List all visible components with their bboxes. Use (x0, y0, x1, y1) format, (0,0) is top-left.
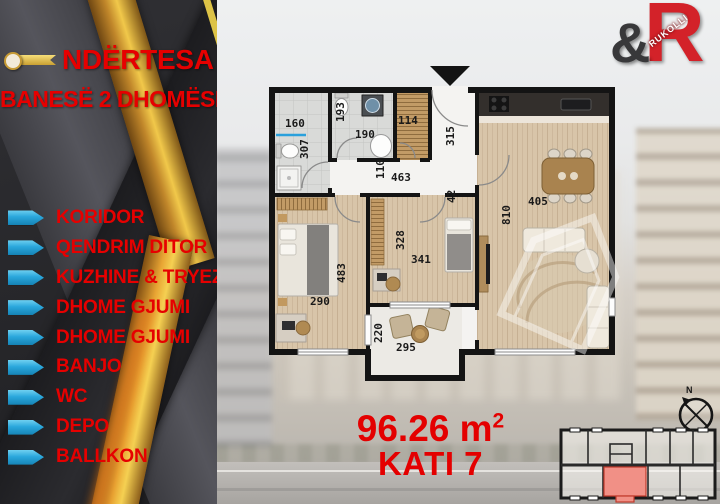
tv (486, 244, 490, 284)
left-info-panel: NDËRTESA 1 BANESË 2 DHOMËSHE KORIDOR QEN… (0, 0, 217, 504)
key-plan-window (676, 496, 686, 500)
room-label: DHOME GJUMI (56, 297, 190, 319)
room-label: KORIDOR (56, 207, 144, 229)
pillow (280, 244, 296, 255)
laptop (282, 321, 295, 330)
room-list-item: KUZHINE & TRYEZARI (8, 263, 217, 293)
window (365, 315, 371, 345)
room-label: WC (56, 386, 87, 408)
north-label: N (686, 385, 693, 395)
arrow-bullet-icon (8, 450, 44, 465)
wall (330, 158, 337, 162)
wardrobe-1 (277, 198, 327, 210)
pillow (280, 229, 296, 240)
arrow-bullet-icon (8, 270, 44, 285)
window (609, 298, 615, 316)
bed-blanket (307, 225, 329, 295)
floor-plan-svg: 160 307 193 190 114 315 110 463 483 290 … (265, 58, 625, 388)
wall (328, 90, 332, 162)
wall (475, 185, 479, 310)
bed-blanket (447, 234, 471, 270)
dim-label: 810 (500, 205, 513, 225)
pillow (447, 220, 471, 230)
room-list-item: QENDRIM DITOR (8, 233, 217, 263)
wall (475, 340, 479, 352)
area-exponent: 2 (493, 410, 505, 433)
room-list-item: KORIDOR (8, 203, 217, 233)
arrow-bullet-icon (8, 390, 44, 405)
entrance-arrow-icon (430, 66, 470, 86)
dim-label: 328 (394, 230, 407, 250)
wardrobe-2 (371, 199, 384, 265)
dim-label: 42 (445, 190, 458, 203)
dim-label: 190 (355, 128, 375, 141)
dim-label: 307 (298, 139, 311, 159)
arrow-bullet-icon (8, 210, 44, 225)
floor-label: KATI 7 (338, 447, 523, 482)
room-list-item: BANJO (8, 352, 217, 382)
dim-label: 114 (398, 114, 418, 127)
dim-label: 483 (335, 263, 348, 283)
dim-label: 463 (391, 171, 411, 184)
room-label: BANJO (56, 356, 122, 378)
dim-label: 220 (372, 323, 385, 343)
key-plan-window (698, 428, 708, 432)
dim-label: 193 (334, 102, 347, 122)
table-decor (558, 172, 566, 180)
dim-label: 405 (528, 195, 548, 208)
toilet-tank (276, 144, 281, 158)
wall (475, 90, 479, 155)
nightstand (278, 298, 287, 306)
key-plan-window (698, 496, 708, 500)
entrance-opening (432, 86, 468, 94)
key-plan-window (676, 428, 686, 432)
arrow-bullet-icon (8, 240, 44, 255)
poster: NDËRTESA 1 BANESË 2 DHOMËSHE KORIDOR QEN… (0, 0, 720, 504)
room-list: KORIDOR QENDRIM DITOR KUZHINE & TRYEZARI… (8, 203, 217, 472)
washing-machine-door (366, 99, 380, 113)
toilet2-tank (335, 93, 348, 98)
burner (492, 106, 497, 111)
room-label: QENDRIM DITOR (56, 237, 207, 259)
desk-chair (296, 321, 310, 335)
balcony-chair (389, 314, 414, 339)
shower-drain (287, 176, 291, 180)
key-plan-window (570, 428, 580, 432)
dim-label: 315 (444, 126, 457, 146)
kitchen-sink (561, 99, 591, 110)
desk-chair (386, 277, 400, 291)
room-hall (430, 90, 477, 160)
building-title: NDËRTESA 1 (62, 44, 217, 76)
toilet (282, 144, 299, 158)
dim-label: 341 (411, 253, 431, 266)
ribbon-icon (4, 51, 56, 69)
footer-info: 96.26 m2 KATI 7 (338, 410, 523, 482)
room-list-item: DHOME GJUMI (8, 323, 217, 353)
area-label: 96.26 m2 (338, 410, 523, 447)
dim-label: 160 (285, 117, 305, 130)
kitchen-backsplash (479, 116, 612, 123)
key-plan-window (592, 428, 602, 432)
laptop (377, 273, 387, 281)
room-list-item: WC (8, 382, 217, 412)
arrow-bullet-icon (8, 330, 44, 345)
key-plan (558, 424, 720, 504)
ribbon-pin (4, 52, 22, 70)
arrow-bullet-icon (8, 360, 44, 375)
dim-label: 290 (310, 295, 330, 308)
room-shaft (462, 305, 477, 352)
wall (368, 303, 390, 307)
dim-label: 110 (374, 159, 387, 179)
logo-ampersand: & (610, 10, 650, 75)
burner (502, 98, 507, 103)
background-building-left (214, 148, 272, 448)
burner (492, 98, 497, 103)
wall (428, 90, 432, 160)
background-building-right (636, 128, 720, 420)
key-plan-highlight-balcony (616, 496, 634, 502)
dim-label: 295 (396, 341, 416, 354)
room-list-item: BALLKON (8, 442, 217, 472)
wall (272, 193, 335, 197)
apartment-type-subtitle: BANESË 2 DHOMËSHE (0, 86, 217, 113)
burner (502, 106, 507, 111)
key-plan-window (653, 428, 663, 432)
area-value: 96.26 m (357, 408, 493, 449)
wall (393, 90, 397, 160)
wall (450, 303, 477, 307)
arrow-bullet-icon (8, 300, 44, 315)
balcony-table-top (415, 329, 425, 339)
table-decor (570, 172, 578, 180)
room-label: DEPO (56, 416, 109, 438)
key-plan-window (653, 496, 663, 500)
room-label: DHOME GJUMI (56, 327, 190, 349)
room-list-item: DHOME GJUMI (8, 293, 217, 323)
room-list-item: DEPO (8, 412, 217, 442)
key-plan-highlight (604, 467, 646, 496)
key-plan-window (588, 496, 598, 500)
stove (489, 96, 509, 112)
room-label: BALLKON (56, 446, 147, 468)
room-label: KUZHINE & TRYEZARI (56, 267, 217, 289)
key-plan-window (570, 496, 580, 500)
brand-logo: R & RUKOLLI (606, 0, 718, 76)
nightstand (278, 214, 287, 222)
arrow-bullet-icon (8, 420, 44, 435)
dining-table (542, 158, 594, 194)
